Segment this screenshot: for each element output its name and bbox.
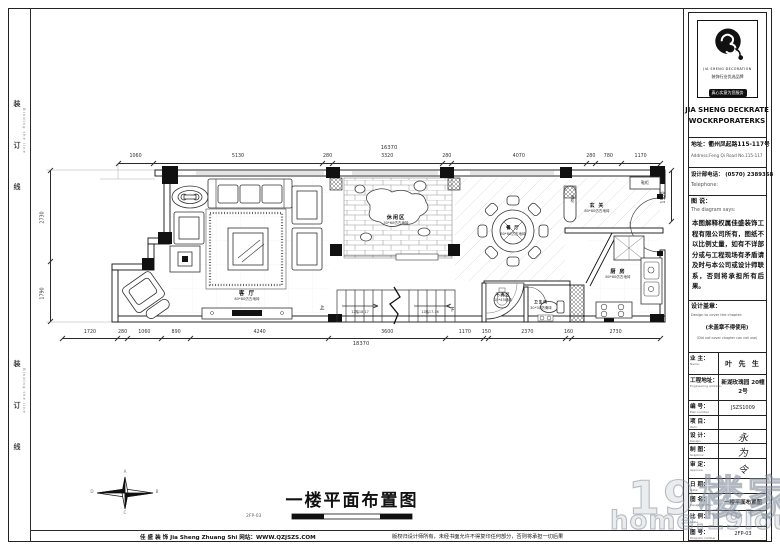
disclaimer-text: 本图解释权属佳盛装饰工程有限公司所有，图纸不以比例丈量，如有不详部分或与工程现场…: [692, 218, 764, 292]
field-label: 设 计：Design:: [690, 431, 718, 443]
field-label: 编 号：Plan number: [690, 402, 718, 414]
dimension-line: [671, 170, 672, 221]
title-block-field-row: 比 例：Scale: [688, 510, 767, 526]
logo-box: JIA SHENG DECORATION 装饰行业优选品牌 真心实意为您服务: [697, 20, 758, 98]
room-label: 玄 关: [590, 202, 605, 209]
title-block-field-row: 项 目：Item: [688, 415, 767, 429]
dimension-line: [118, 163, 660, 164]
dim-label: 280: [442, 154, 451, 159]
room-finish-label: 13*45墙砖: [494, 298, 512, 303]
phone-en: Telephone:: [691, 183, 718, 189]
phone-cn: 设计部电话： (0570) 2389368: [691, 172, 773, 178]
seal-cn: 设计盖章：: [691, 304, 721, 311]
field-value: 令: [718, 459, 767, 478]
phone-section: 设计部电话： (0570) 2389368 Telephone:: [688, 167, 767, 195]
field-label: 图 名：Design for Plan: [690, 495, 718, 507]
dim-label: 2370: [521, 330, 533, 335]
dim-label: 4240: [253, 330, 265, 335]
title-block-field-row: 图 号：Diagram number2FP-03: [688, 526, 767, 541]
field-value: 新湖玫瑰园 20幢2号: [718, 375, 767, 400]
room-label: 休闲区: [387, 214, 406, 221]
field-value: 永: [718, 430, 767, 443]
seal-note-en: (Did not cover chapter can not use): [697, 337, 758, 341]
title-block-field-row: 编 号：Plan numberJSZS1009: [688, 400, 767, 415]
field-value: 为: [718, 444, 767, 458]
room-finish-label: 80*80仿古地砖: [500, 232, 525, 237]
room-finish-label: 80*80仿古地砖: [584, 209, 609, 214]
diagram-says-cn: 图 说：: [691, 199, 711, 206]
dim-label: 280: [118, 330, 127, 335]
title-block-field-row: 制 图：Graphics:为: [688, 443, 767, 458]
field-label: 制 图：Graphics:: [690, 445, 718, 457]
logo-brand-text: JIA SHENG DECORATION: [698, 68, 757, 72]
diagram-says-en: The diagram says:: [691, 208, 735, 214]
title-block-field-row: 工程地址：Engineering address:新湖玫瑰园 20幢2号: [688, 374, 767, 400]
dim-label: 1170: [635, 154, 647, 159]
field-label: 业 主：Name:: [690, 354, 718, 366]
jiasheng-logo-icon: [708, 24, 748, 64]
dim-label: 150: [482, 330, 491, 335]
compass-letter-w: D: [90, 489, 93, 494]
floor-plan-linework: [0, 0, 780, 551]
dim-label: 1170: [459, 330, 471, 335]
dim-label: 1060: [138, 330, 150, 335]
field-label: 审 定：Approve:: [690, 460, 718, 472]
logo-slogan-2: 真心实意为您服务: [709, 89, 747, 97]
dim-label: 2730: [41, 212, 46, 224]
dim-label: 1790: [41, 287, 46, 299]
field-value: [718, 479, 767, 493]
dim-label: 2730: [609, 330, 621, 335]
seal-en: Design to cover the chapter:: [691, 313, 742, 317]
drawing-number-caption: 2FP-03: [246, 514, 261, 519]
footer-copyright: 版权归设计师所有，未经书面允许不得复印任何部分，否则将承担一切后果: [392, 533, 563, 540]
dim-label: 780: [604, 154, 613, 159]
compass-letter-e: B: [156, 489, 159, 494]
company-name-line1: JIA SHENG DECKRATE: [685, 106, 769, 114]
title-block-field-row: 日 期：Date:: [688, 478, 767, 493]
room-finish-label: 80*80仿古地砖: [605, 275, 630, 280]
title-block-field-row: 审 定：Approve:令: [688, 458, 767, 478]
field-value: 2FP-03: [718, 527, 767, 541]
dim-label: 890: [172, 330, 181, 335]
room-finish-label: 30*60仿古地砖: [383, 221, 408, 226]
address-cn: 地址：衢州凤起路115-117号: [691, 142, 770, 149]
dim-overall-label: 16370: [381, 145, 398, 151]
field-label: 工程地址：Engineering address:: [690, 376, 718, 388]
stair-run-label: 12踏17-16: [421, 309, 439, 314]
field-value: [718, 416, 767, 429]
title-block-field-row: 设 计：Design:永: [688, 429, 767, 443]
field-label: 图 号：Diagram number: [690, 528, 718, 540]
dim-overall-label: 18370: [353, 341, 370, 347]
field-label: 日 期：Date:: [690, 480, 718, 492]
wine-cabinet-label: 酒柜: [571, 195, 576, 203]
footer-company: 佳 盛 装 饰 Jia Sheng Zhuang Shi 网站：WWW.QZJS…: [140, 533, 316, 541]
seal-note-cn: (未盖章不得使用): [706, 325, 749, 331]
address-section: 地址：衢州凤起路115-117号 Address:Feng Qi Road No…: [688, 137, 767, 167]
dim-label: 160: [564, 330, 573, 335]
compass-letter-s: C: [124, 510, 127, 515]
room-finish-label: 80*80仿古地砖: [234, 297, 259, 302]
field-value: 叶 先 生: [718, 353, 767, 374]
dim-label: 4070: [513, 154, 525, 159]
field-value: JSZS1009: [718, 401, 767, 415]
drawing-title: 一楼平面布置图: [286, 492, 419, 512]
room-label: 厨 房: [610, 268, 625, 275]
compass-letter-n: A: [124, 469, 127, 474]
seal-section: 设计盖章： Design to cover the chapter: (未盖章不…: [688, 300, 767, 352]
title-block-field-row: 图 名：Design for Plan一楼平面布置图: [688, 493, 767, 510]
field-label: 比 例：Scale: [690, 512, 718, 524]
dim-label: 280: [323, 154, 332, 159]
field-label: 项 目：Item: [690, 417, 718, 429]
company-name-line2: WOCKRPORATERKS: [689, 117, 765, 125]
stair-down-label: 下: [450, 307, 455, 313]
title-block-field-row: 业 主：Name:叶 先 生: [688, 352, 767, 374]
stair-run-label: 12踏18-17: [351, 309, 369, 314]
dim-label: 1060: [129, 154, 141, 159]
dim-label: 3320: [381, 154, 393, 159]
dimension-line: [50, 170, 51, 321]
dim-label: 1530: [662, 192, 667, 204]
address-en: Address:Feng Qi Road No.115-117: [691, 154, 763, 159]
dim-label: 1720: [84, 330, 96, 335]
dim-label: 3600: [381, 330, 393, 335]
drawing-sheet: 装 订 线 Binding the line 装 订 线 Binding the…: [0, 0, 780, 551]
field-value: 一楼平面布置图: [718, 494, 767, 510]
room-label: 卫生间: [534, 300, 548, 305]
room-finish-label: 30*30防滑砖: [530, 306, 552, 311]
dim-label: 5130: [232, 154, 244, 159]
field-value: [718, 511, 767, 526]
dim-label: 280: [586, 154, 595, 159]
room-label: 餐 厅: [506, 225, 520, 231]
stair-up-label: 上: [320, 305, 325, 311]
diagram-says-section: 图 说： The diagram says: 本图解释权属佳盛装饰工程有限公司所…: [688, 195, 767, 300]
shoe-cabinet-label: 鞋柜: [641, 180, 649, 186]
logo-slogan-1: 装饰行业优选品牌: [698, 75, 757, 80]
